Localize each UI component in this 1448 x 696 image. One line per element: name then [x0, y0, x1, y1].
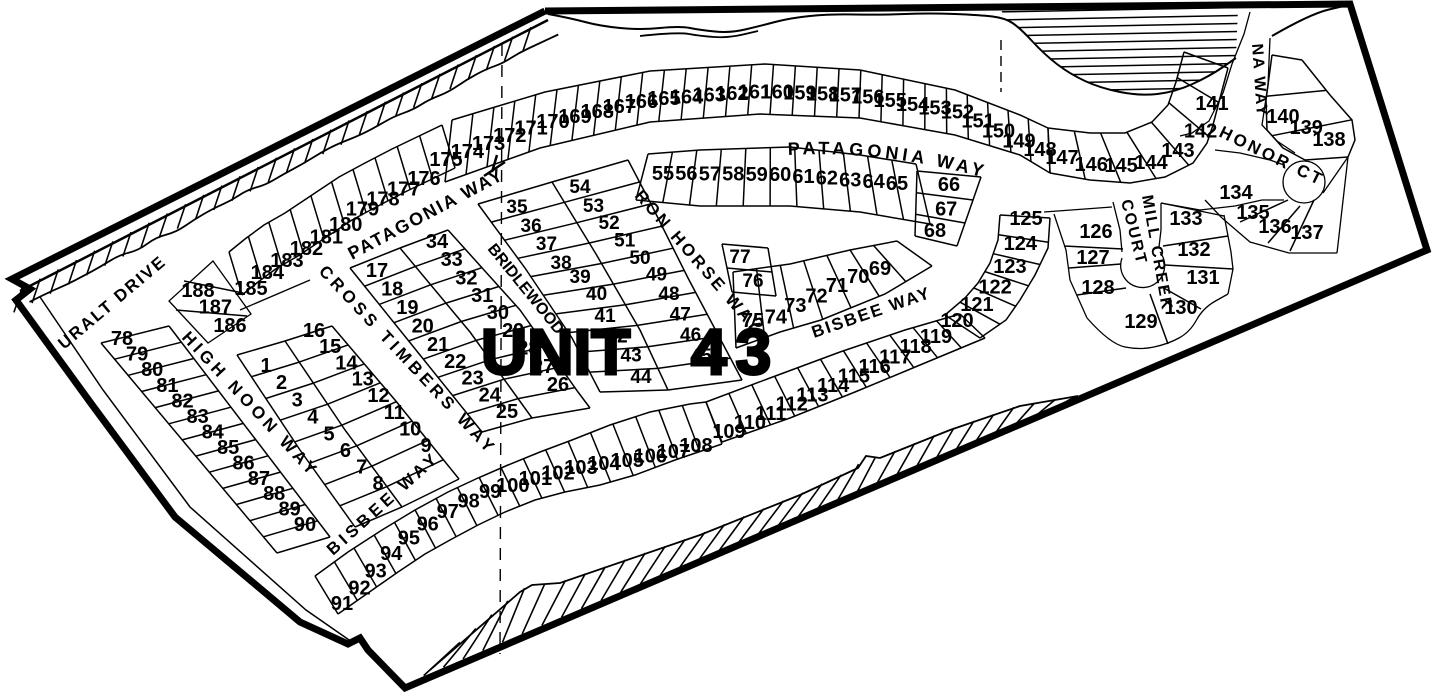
svg-text:129: 129: [1124, 311, 1157, 333]
svg-text:188: 188: [181, 280, 214, 302]
svg-text:43: 43: [691, 316, 780, 388]
svg-text:49: 49: [646, 264, 667, 285]
svg-text:54: 54: [569, 177, 591, 198]
svg-text:47: 47: [670, 304, 691, 325]
svg-text:71: 71: [826, 275, 848, 297]
svg-text:56: 56: [675, 163, 697, 185]
svg-text:97: 97: [437, 501, 459, 523]
svg-text:66: 66: [938, 174, 960, 196]
svg-text:126: 126: [1079, 221, 1112, 243]
svg-text:142: 142: [1184, 120, 1217, 142]
svg-text:72: 72: [805, 286, 827, 308]
svg-text:44: 44: [630, 367, 652, 388]
svg-text:10: 10: [399, 418, 421, 440]
svg-text:6: 6: [340, 440, 351, 462]
svg-text:63: 63: [839, 169, 861, 191]
svg-text:76: 76: [742, 271, 763, 292]
svg-text:38: 38: [551, 253, 572, 274]
svg-text:122: 122: [978, 277, 1011, 299]
svg-text:146: 146: [1075, 154, 1108, 176]
svg-text:60: 60: [769, 164, 791, 186]
svg-text:127: 127: [1076, 247, 1109, 269]
svg-text:4: 4: [307, 407, 319, 429]
svg-text:70: 70: [847, 266, 869, 288]
svg-text:62: 62: [816, 168, 838, 190]
svg-text:5: 5: [324, 423, 335, 445]
svg-text:143: 143: [1161, 140, 1194, 162]
svg-text:3: 3: [292, 390, 303, 412]
svg-text:1: 1: [260, 355, 271, 377]
svg-text:59: 59: [746, 164, 768, 186]
svg-text:137: 137: [1290, 222, 1323, 244]
svg-text:77: 77: [729, 247, 750, 268]
svg-text:128: 128: [1081, 277, 1114, 299]
svg-text:57: 57: [699, 163, 721, 185]
svg-text:61: 61: [792, 166, 814, 188]
svg-text:98: 98: [457, 490, 479, 512]
svg-text:119: 119: [920, 326, 952, 348]
svg-text:67: 67: [935, 198, 957, 220]
svg-text:2: 2: [276, 372, 287, 394]
svg-text:69: 69: [869, 258, 891, 280]
svg-text:64: 64: [862, 171, 885, 193]
svg-text:132: 132: [1177, 239, 1210, 261]
svg-text:48: 48: [658, 284, 679, 305]
svg-text:108: 108: [679, 435, 712, 457]
svg-text:58: 58: [722, 164, 744, 186]
svg-text:7: 7: [356, 456, 367, 478]
svg-text:25: 25: [496, 401, 518, 423]
svg-text:68: 68: [924, 220, 946, 242]
svg-text:125: 125: [1009, 208, 1042, 230]
svg-text:35: 35: [506, 197, 528, 218]
svg-text:73: 73: [784, 295, 806, 317]
svg-text:138: 138: [1312, 129, 1345, 151]
svg-text:124: 124: [1004, 233, 1038, 255]
svg-text:134: 134: [1219, 182, 1253, 204]
svg-text:131: 131: [1186, 267, 1219, 289]
svg-text:123: 123: [993, 256, 1026, 278]
svg-text:136: 136: [1258, 216, 1291, 238]
svg-text:55: 55: [652, 163, 674, 185]
svg-text:141: 141: [1195, 93, 1228, 115]
svg-text:40: 40: [586, 284, 607, 305]
svg-text:UNIT: UNIT: [481, 316, 630, 388]
svg-text:90: 90: [294, 514, 316, 536]
svg-text:145: 145: [1104, 155, 1137, 177]
svg-text:96: 96: [417, 513, 439, 535]
svg-text:65: 65: [886, 173, 908, 195]
svg-text:133: 133: [1169, 208, 1202, 230]
